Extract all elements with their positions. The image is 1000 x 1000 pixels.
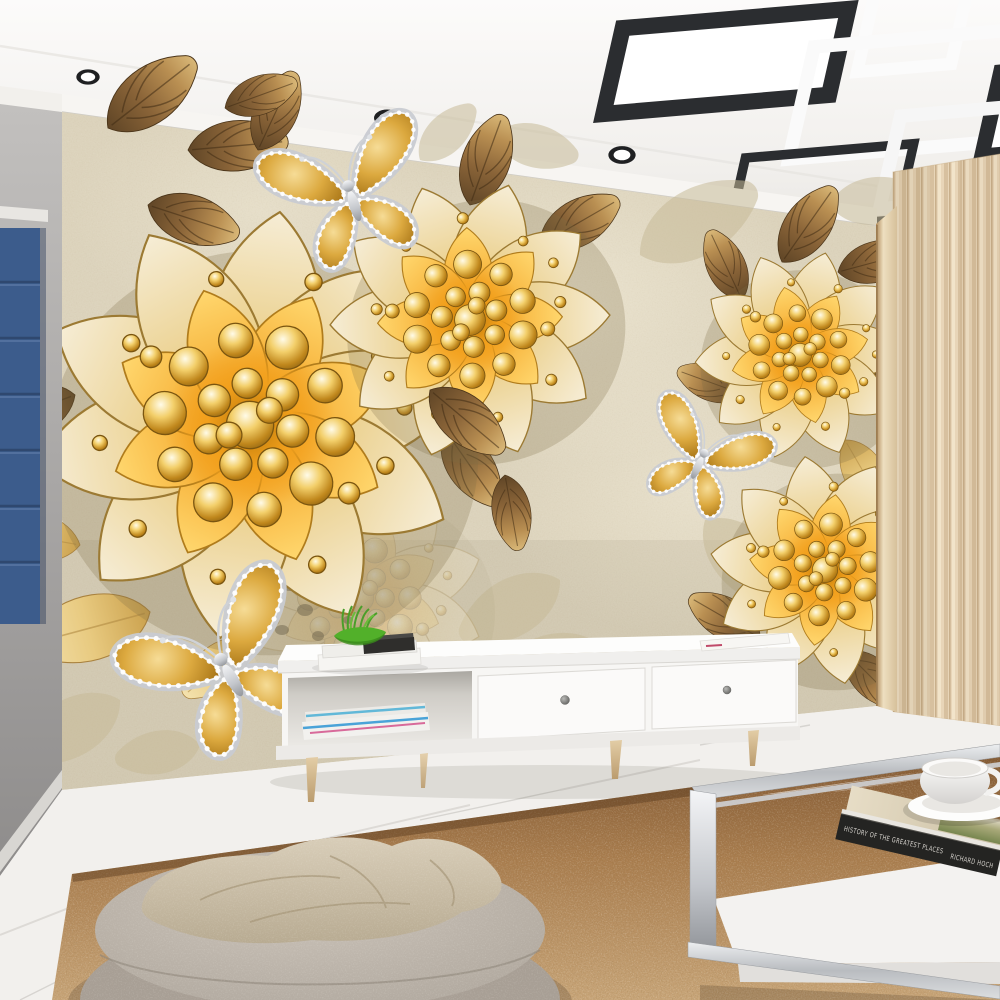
slat-curtain — [893, 154, 1000, 726]
drawer-right — [652, 660, 796, 729]
wall-trim — [876, 206, 897, 712]
left-wall — [0, 104, 62, 876]
recessed-spotlight — [74, 67, 103, 87]
room-scene: HISTORY OF THE GREATEST PLACES RICHARD H… — [0, 0, 1000, 1000]
drawer-knob — [723, 686, 731, 694]
living-room-photo: HISTORY OF THE GREATEST PLACES RICHARD H… — [0, 0, 1000, 1000]
drawer-left — [478, 668, 645, 740]
drawer-knob — [561, 696, 570, 705]
recessed-spotlight — [605, 143, 639, 166]
